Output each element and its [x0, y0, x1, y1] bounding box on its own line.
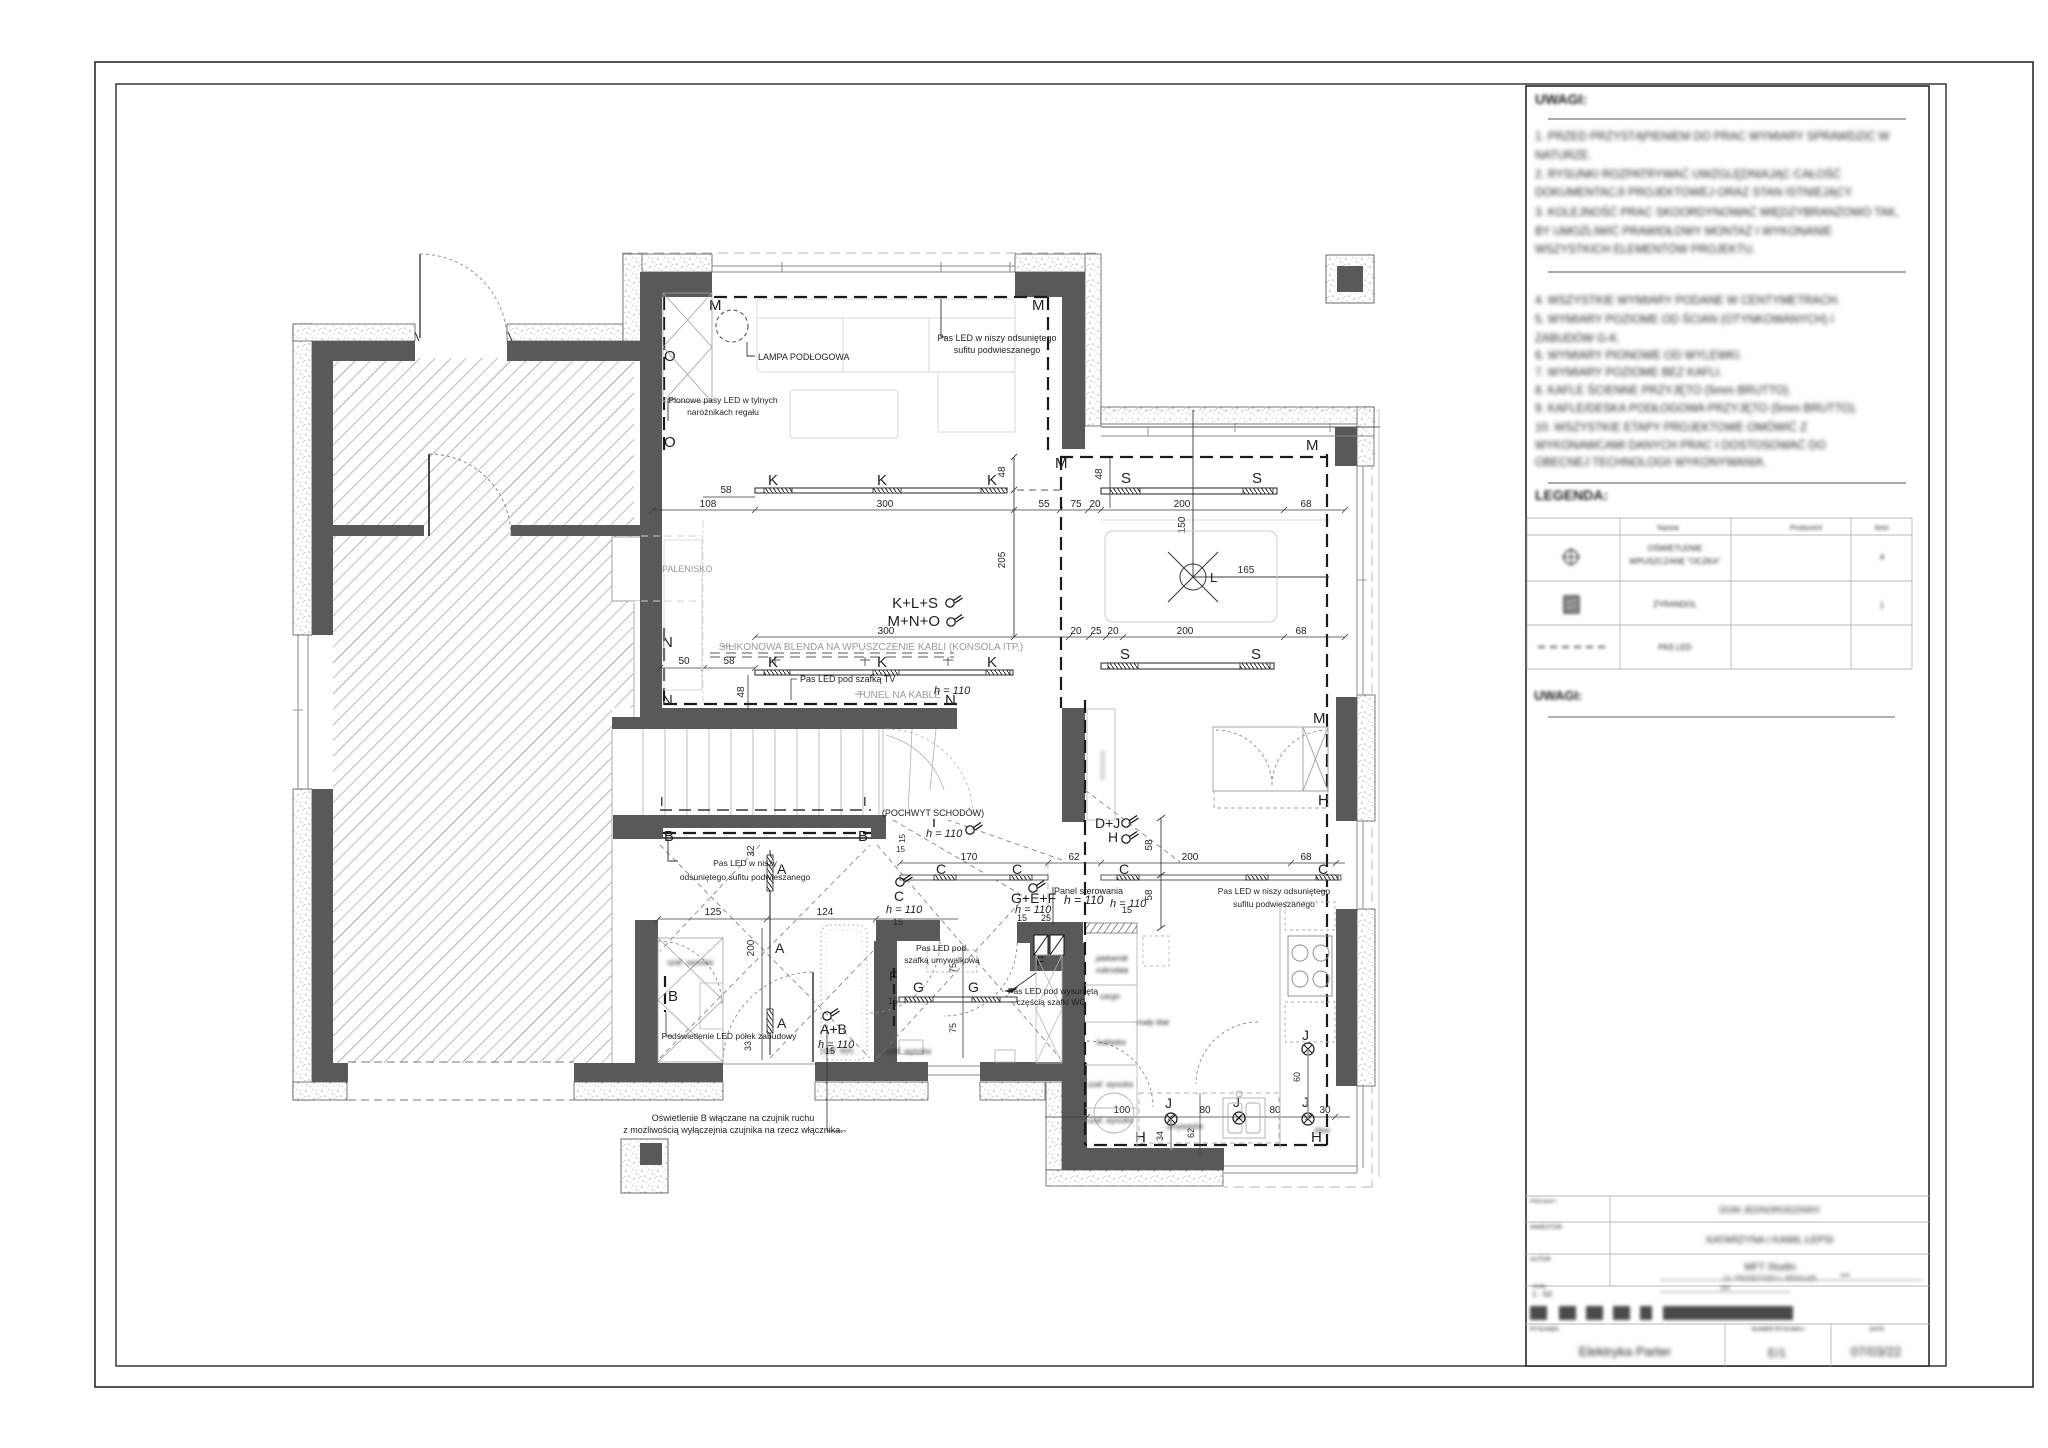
svg-text:KATARZYNA I KAMIL ŁEPSI: KATARZYNA I KAMIL ŁEPSI [1706, 1235, 1833, 1246]
svg-text:1. PRZED PRZYSTĄPIENIEM DO PRA: 1. PRZED PRZYSTĄPIENIEM DO PRAC WYMIARY … [1535, 130, 1890, 143]
svg-text:4: 4 [1880, 553, 1885, 562]
svg-text:15: 15 [893, 917, 903, 927]
svg-text:H: H [1318, 792, 1329, 809]
svg-text:OBECNEJ TECHNOLOGII WYKONYWANI: OBECNEJ TECHNOLOGII WYKONYWANIA. [1535, 457, 1766, 469]
svg-text:LAMPA PODŁOGOWA: LAMPA PODŁOGOWA [758, 352, 850, 362]
svg-text:PROJEKT: PROJEKT [1530, 1199, 1558, 1205]
svg-text:Ilość: Ilość [1875, 525, 1890, 532]
svg-text:AUTOR: AUTOR [1530, 1257, 1552, 1263]
svg-text:9. KAFLE/DESKA PODŁOGOWA PRZYJ: 9. KAFLE/DESKA PODŁOGOWA PRZYJĘTO (5mm B… [1535, 403, 1858, 415]
svg-text:SILIKONOWA BLENDA NA WPUSZCZEN: SILIKONOWA BLENDA NA WPUSZCZENIE KABLI (… [719, 642, 1024, 653]
svg-text:M: M [1032, 297, 1045, 314]
svg-text:Podświetlenie LED półek zabudo: Podświetlenie LED półek zabudowy [662, 1031, 797, 1041]
svg-text:15: 15 [898, 834, 907, 843]
svg-text:konsola: konsola [1097, 750, 1107, 780]
svg-text:20: 20 [1089, 499, 1101, 510]
svg-text:UWAGI:: UWAGI: [1534, 688, 1582, 703]
svg-text:250: 250 [1720, 1286, 1731, 1292]
svg-text:K: K [877, 472, 887, 489]
svg-text:7. WYMIARY POZIOME BEZ KAFLI.: 7. WYMIARY POZIOME BEZ KAFLI. [1535, 367, 1722, 379]
svg-text:szaf. wysoka: szaf. wysoka [667, 958, 713, 967]
svg-text:S: S [1120, 646, 1130, 663]
svg-text:zmywarka: zmywarka [1166, 1122, 1204, 1131]
svg-text:G: G [968, 979, 979, 995]
svg-text:80: 80 [1199, 1105, 1211, 1116]
svg-text:szafką umywalkową: szafką umywalkową [904, 955, 980, 965]
svg-text:60: 60 [1292, 1072, 1302, 1082]
svg-text:A: A [775, 940, 785, 956]
svg-text:68: 68 [1300, 499, 1312, 510]
svg-text:Oświetlenie B włączane na czuj: Oświetlenie B włączane na czujnik ruchu [652, 1113, 815, 1123]
svg-text:C: C [1119, 861, 1129, 877]
svg-text:1: 1 [1880, 601, 1885, 610]
svg-text:1 : 50: 1 : 50 [1532, 1290, 1553, 1299]
svg-text:F: F [1036, 953, 1045, 969]
svg-text:MFT Studio: MFT Studio [1744, 1262, 1796, 1273]
svg-text:OŚWIETLENIE: OŚWIETLENIE [1648, 544, 1703, 553]
svg-text:Nazwa: Nazwa [1657, 525, 1679, 532]
svg-text:Producent: Producent [1790, 525, 1822, 532]
svg-text:sufitu podwieszanego: sufitu podwieszanego [954, 345, 1041, 355]
svg-text:200: 200 [746, 939, 757, 956]
svg-text:170: 170 [961, 852, 978, 863]
svg-text:J: J [1233, 1094, 1240, 1110]
svg-text:C: C [1318, 861, 1328, 877]
svg-text:15: 15 [896, 845, 905, 854]
svg-text:300: 300 [877, 499, 894, 510]
svg-text:M+N+O: M+N+O [887, 613, 940, 630]
svg-text:Pas LED w niszy: Pas LED w niszy [713, 858, 778, 868]
svg-text:32: 32 [746, 845, 757, 857]
svg-text:20: 20 [1107, 626, 1119, 637]
svg-text:cargo: cargo [1100, 992, 1121, 1001]
svg-text:5. WYMIARY POZIOME OD ŚCIAN (O: 5. WYMIARY POZIOME OD ŚCIAN (OTYNKOWANYC… [1535, 313, 1834, 326]
svg-text:h = 110: h = 110 [1110, 898, 1147, 910]
svg-text:NUMER RYSUNKU: NUMER RYSUNKU [1752, 1327, 1805, 1333]
svg-text:N: N [662, 692, 673, 709]
svg-text:L: L [1210, 570, 1217, 585]
svg-text:48: 48 [736, 686, 747, 698]
svg-text:h = 110: h = 110 [934, 685, 971, 697]
svg-text:4. WSZYSTKIE WYMIARY PODANE W: 4. WSZYSTKIE WYMIARY PODANE W CENTYMETRA… [1535, 295, 1840, 307]
svg-text:B: B [668, 988, 678, 1005]
svg-text:6. WYMIARY PIONOWE OD WYLEWKI.: 6. WYMIARY PIONOWE OD WYLEWKI. [1535, 350, 1742, 362]
svg-text:3. KOLEJNOŚĆ PRAC SKOORDYNOWAĆ: 3. KOLEJNOŚĆ PRAC SKOORDYNOWAĆ MIĘDZYBRA… [1535, 206, 1899, 219]
svg-text:10. WSZYSTKIE ETAPY PROJEKTOWE: 10. WSZYSTKIE ETAPY PROJEKTOWE OMÓWIĆ Z [1535, 421, 1807, 434]
svg-text:20: 20 [1070, 626, 1082, 637]
svg-text:K: K [987, 472, 997, 489]
svg-text:48: 48 [997, 466, 1008, 478]
svg-text:200: 200 [1182, 852, 1199, 863]
svg-text:narożnikach regału: narożnikach regału [687, 407, 759, 417]
svg-text:h = 110: h = 110 [1015, 904, 1052, 916]
svg-text:100: 100 [1114, 1105, 1131, 1116]
svg-text:58: 58 [723, 656, 735, 667]
svg-text:odsuniętego sufitu podwieszane: odsuniętego sufitu podwieszanego [680, 872, 811, 882]
svg-text:A: A [777, 1015, 787, 1031]
svg-text:LEGENDA:: LEGENDA: [1535, 487, 1608, 503]
svg-text:K: K [768, 472, 778, 489]
svg-text:WYKONAWCAMI DANYCH PRAC I DOS: WYKONAWCAMI DANYCH PRAC I DOSTOSOWAĆ DO [1535, 439, 1826, 452]
svg-text:25: 25 [1090, 626, 1102, 637]
svg-text:RYSUNEK: RYSUNEK [1530, 1327, 1559, 1333]
svg-text:szaf. wysoka: szaf. wysoka [1087, 1116, 1133, 1125]
svg-text:8. KAFLE ŚCIENNE PRZYJĘTO (5mm: 8. KAFLE ŚCIENNE PRZYJĘTO (5mm BRUTTO). [1535, 384, 1791, 397]
svg-text:H: H [1108, 829, 1118, 845]
svg-text:C: C [936, 861, 946, 877]
svg-text:UL. PROJEKTOWA 1, WROCŁAW: UL. PROJEKTOWA 1, WROCŁAW [1724, 1276, 1817, 1282]
svg-text:B: B [858, 828, 868, 845]
svg-text:zlew: zlew [1313, 1126, 1331, 1135]
svg-text:I: I [660, 794, 664, 809]
svg-text:S: S [1121, 470, 1131, 487]
svg-text:I: I [863, 794, 867, 809]
svg-text:TUNEL NA KABLE: TUNEL NA KABLE [857, 690, 941, 701]
svg-text:lodówka: lodówka [1096, 1038, 1126, 1047]
svg-text:A+B: A+B [820, 1021, 847, 1037]
svg-text:szaf. wys.: szaf. wys. [820, 1046, 855, 1055]
svg-text:C: C [1012, 861, 1022, 877]
svg-text:75: 75 [1070, 499, 1082, 510]
svg-text:szaf. wysoka: szaf. wysoka [885, 1047, 931, 1056]
svg-text:K: K [768, 654, 778, 671]
svg-text:K: K [877, 654, 887, 671]
svg-text:h = 110: h = 110 [926, 828, 963, 840]
svg-text:mikrofala: mikrofala [1096, 966, 1129, 975]
svg-text:200: 200 [1177, 626, 1194, 637]
svg-text:68: 68 [1300, 852, 1312, 863]
svg-text:C: C [894, 888, 904, 904]
svg-text:mały blat: mały blat [1137, 1018, 1170, 1027]
svg-text:DATA: DATA [1869, 1327, 1884, 1333]
svg-text:205: 205 [997, 551, 1008, 568]
svg-text:M: M [709, 297, 722, 314]
svg-text:M: M [1313, 710, 1326, 727]
svg-text:M: M [1055, 455, 1068, 472]
svg-text:sufitu podwieszanego: sufitu podwieszanego [1233, 899, 1315, 909]
svg-text:K: K [987, 654, 997, 671]
svg-text:J: J [1165, 1095, 1172, 1111]
svg-text:30: 30 [1319, 1105, 1331, 1116]
svg-text:DOKUMENTACJI PROJEKTOWEJ ORAZ: DOKUMENTACJI PROJEKTOWEJ ORAZ STAN ISTNI… [1535, 187, 1854, 199]
svg-text:ZABUDÓW G-K.: ZABUDÓW G-K. [1535, 332, 1621, 345]
svg-text:(POCHWYT SCHODÓW): (POCHWYT SCHODÓW) [882, 808, 984, 818]
svg-text:PALENISKO: PALENISKO [662, 564, 712, 574]
svg-text:50: 50 [678, 656, 690, 667]
svg-text:Elektryka Parter: Elektryka Parter [1579, 1344, 1672, 1359]
svg-text:Pas LED pod wysuniętą: Pas LED pod wysuniętą [1008, 986, 1099, 996]
svg-text:200: 200 [1174, 499, 1191, 510]
svg-text:ŻYRANDOL: ŻYRANDOL [1653, 600, 1697, 609]
svg-text:h = 110: h = 110 [886, 904, 923, 916]
svg-text:48: 48 [1094, 468, 1105, 480]
svg-text:07/03/22: 07/03/22 [1851, 1344, 1902, 1359]
svg-text:UWAGI:: UWAGI: [1535, 91, 1587, 107]
svg-text:DOM JEDNORODZINNY: DOM JEDNORODZINNY [1720, 1205, 1821, 1215]
svg-text:E/1: E/1 [1768, 1346, 1786, 1360]
svg-text:h = 110: h = 110 [1064, 893, 1104, 907]
svg-text:62: 62 [1068, 852, 1080, 863]
svg-text:szaf. wysoka: szaf. wysoka [1087, 1080, 1133, 1089]
svg-text:75: 75 [948, 1023, 958, 1033]
svg-text:165: 165 [1238, 565, 1255, 576]
svg-text:Pionowe pasy LED w tylnych: Pionowe pasy LED w tylnych [668, 395, 777, 405]
svg-text:Pas LED pod szafką TV: Pas LED pod szafką TV [800, 674, 895, 684]
svg-text:WSZYSTKICH ELEMENTÓW PROJEKTU.: WSZYSTKICH ELEMENTÓW PROJEKTU. [1535, 243, 1755, 256]
svg-text:z możliwością wyłączejnia czuj: z możliwością wyłączejnia czujnika na rz… [623, 1125, 843, 1135]
svg-text:Pas LED pod: Pas LED pod [916, 943, 966, 953]
svg-text:INWESTOR: INWESTOR [1530, 1225, 1563, 1231]
svg-text:55: 55 [1038, 499, 1050, 510]
svg-text:2. RYSUNKI ROZPATRYWAĆ UWZGLĘD: 2. RYSUNKI ROZPATRYWAĆ UWZGLĘDNIAJĄC CAŁ… [1535, 168, 1841, 181]
svg-text:częścią szafki WC: częścią szafki WC [1017, 997, 1086, 1007]
svg-text:BY UMOŻLIWIĆ PRAWIDŁOWY MONTAŻ: BY UMOŻLIWIĆ PRAWIDŁOWY MONTAŻ I WYKONAN… [1535, 225, 1833, 238]
svg-text:15: 15 [888, 996, 898, 1006]
svg-text:58: 58 [1144, 839, 1155, 851]
svg-text:34: 34 [1155, 1131, 1165, 1141]
svg-text:500: 500 [1840, 1273, 1851, 1279]
svg-text:piekarnik: piekarnik [1095, 954, 1129, 963]
svg-text:68: 68 [1295, 626, 1307, 637]
svg-text:S: S [1252, 470, 1262, 487]
svg-text:O: O [664, 434, 676, 451]
svg-text:K+L+S: K+L+S [892, 595, 938, 612]
svg-text:M: M [1306, 437, 1319, 454]
svg-text:108: 108 [700, 499, 717, 510]
svg-text:NATURZE.: NATURZE. [1535, 150, 1592, 162]
svg-text:124: 124 [817, 907, 834, 918]
svg-text:J: J [1302, 1027, 1309, 1043]
svg-text:WPUSZCZANE "OCZKA": WPUSZCZANE "OCZKA" [1629, 557, 1721, 566]
svg-text:PAS LED: PAS LED [1658, 643, 1691, 652]
svg-text:125: 125 [705, 907, 722, 918]
svg-text:B: B [664, 828, 674, 845]
svg-text:Pas LED w niszy odsuniętego: Pas LED w niszy odsuniętego [937, 333, 1056, 343]
svg-text:G: G [913, 979, 924, 995]
svg-text:S: S [1251, 646, 1261, 663]
svg-text:58: 58 [720, 485, 732, 496]
svg-text:Pas LED w niszy odsuniętego: Pas LED w niszy odsuniętego [1218, 886, 1331, 896]
svg-text:33: 33 [743, 1041, 753, 1051]
